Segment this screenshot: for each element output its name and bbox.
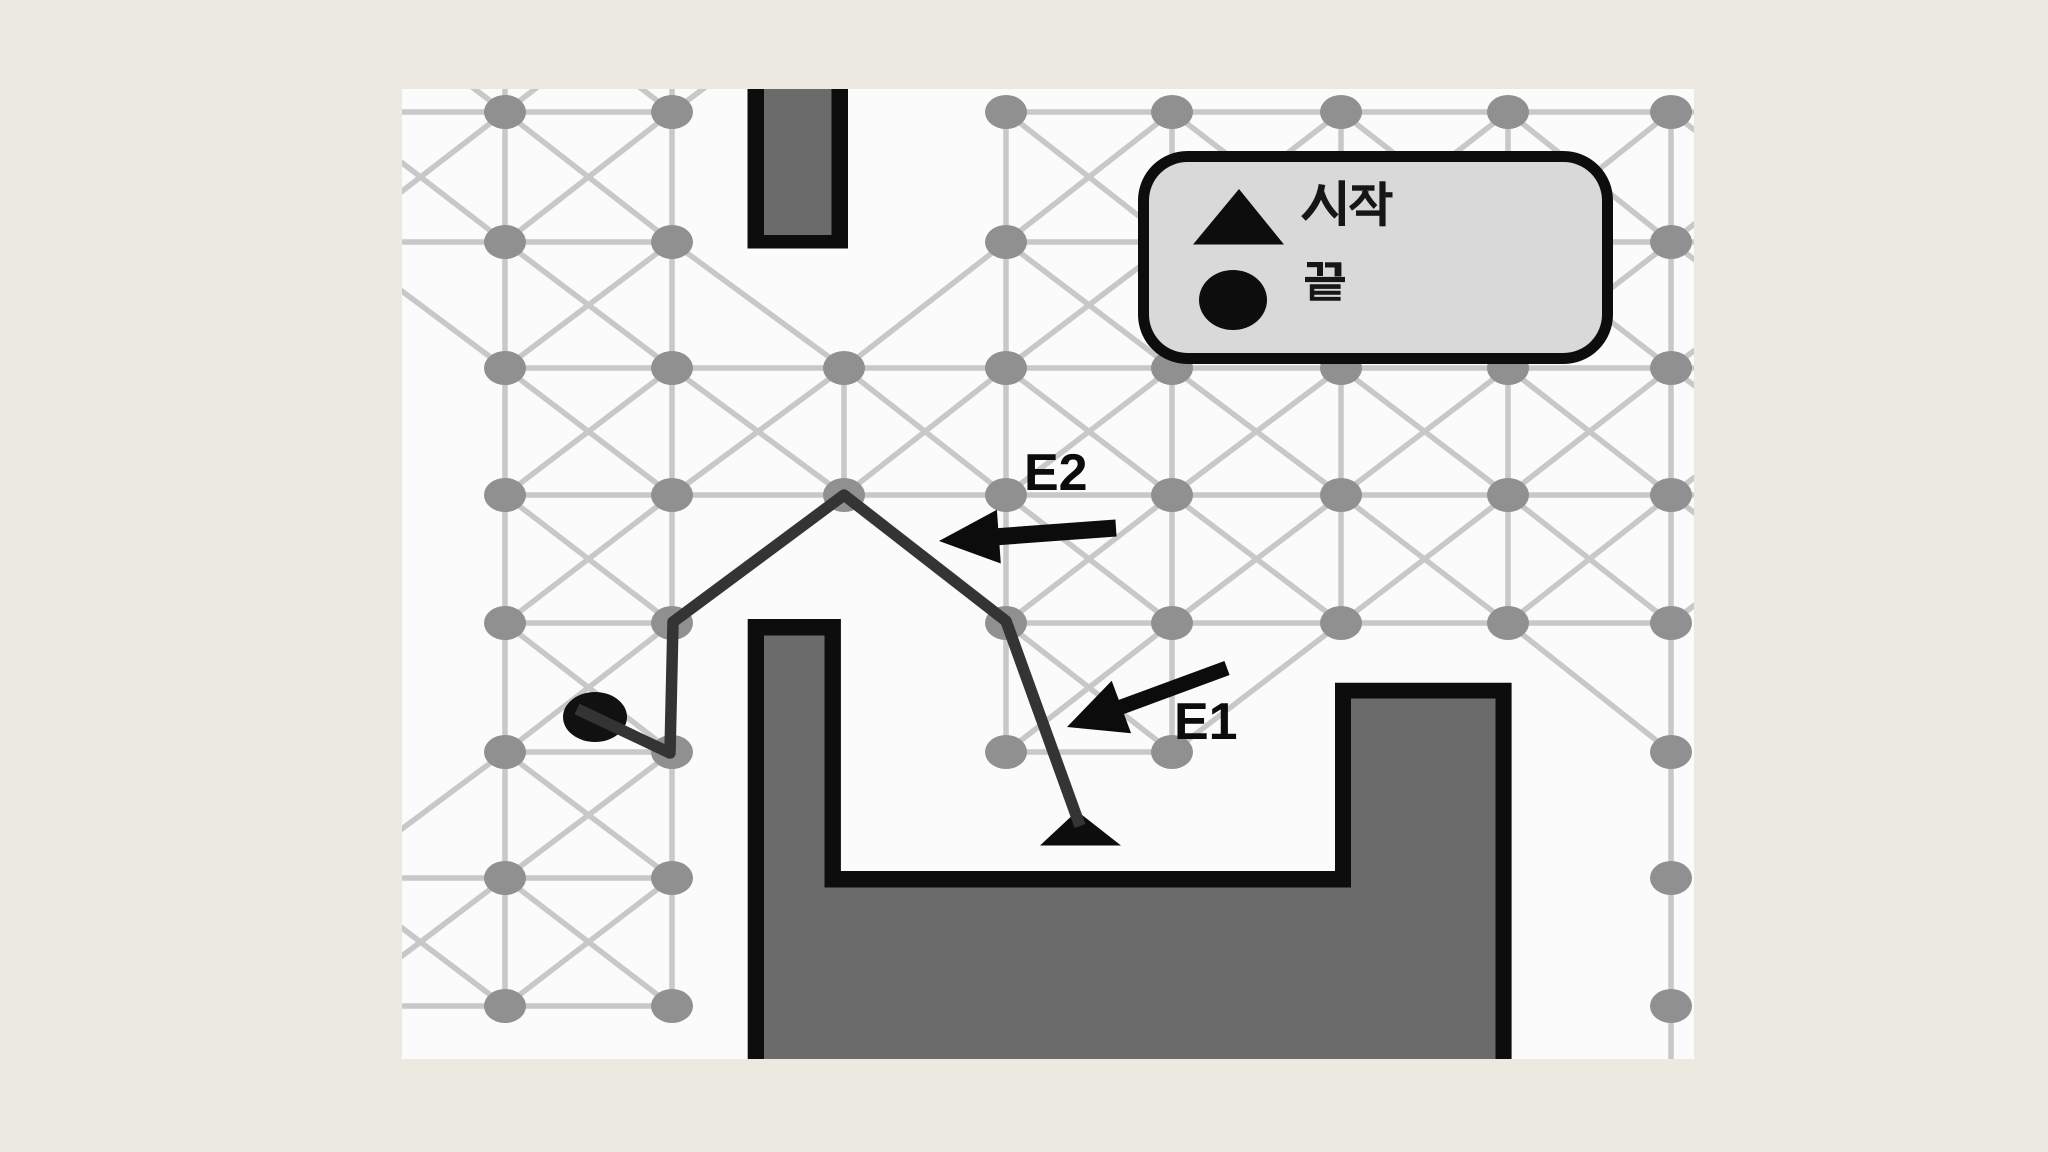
svg-text:E2: E2 bbox=[1024, 444, 1088, 502]
svg-text:E1: E1 bbox=[1174, 693, 1238, 751]
